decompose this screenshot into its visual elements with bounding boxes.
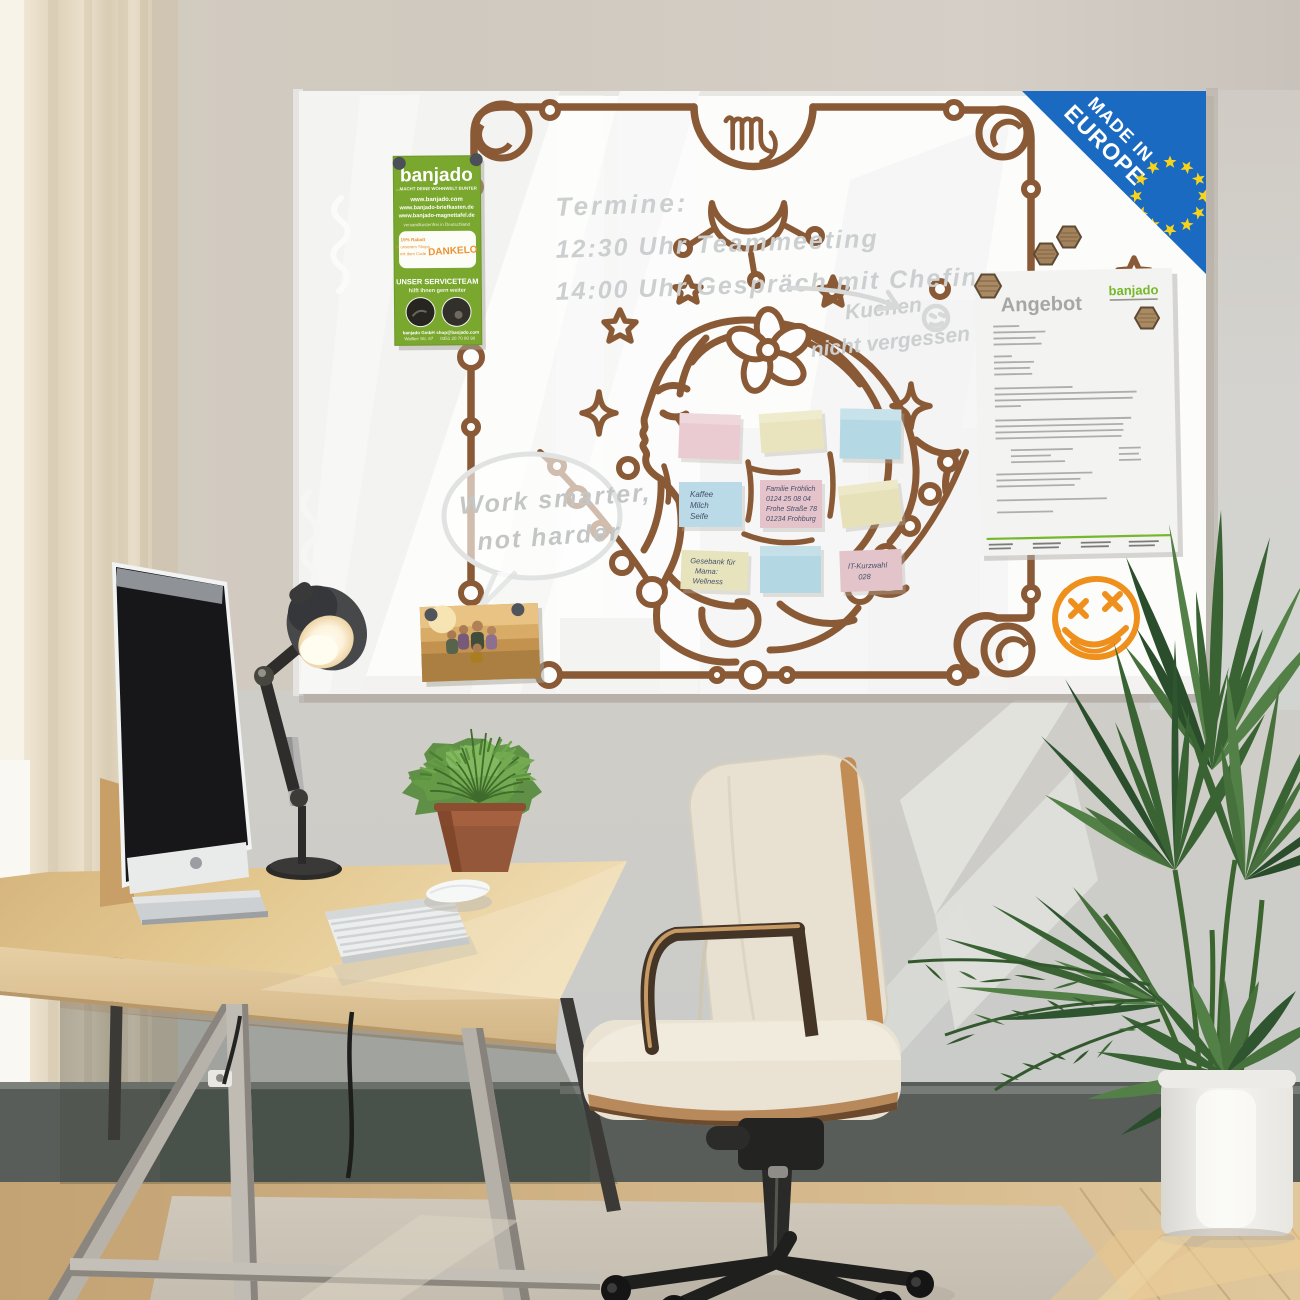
svg-text:banjado: banjado bbox=[1108, 282, 1158, 298]
svg-text:Angebot: Angebot bbox=[1001, 293, 1083, 317]
svg-text:www.banjado-briefkasten.de: www.banjado-briefkasten.de bbox=[398, 205, 473, 212]
svg-text:0351 20 70 80 90: 0351 20 70 80 90 bbox=[440, 336, 476, 341]
svg-text:mit dem Code: mit dem Code bbox=[400, 251, 427, 256]
svg-text:Frohe Straße 78: Frohe Straße 78 bbox=[766, 506, 817, 513]
svg-text:Mama:: Mama: bbox=[695, 566, 718, 576]
svg-text:15% Rabatt: 15% Rabatt bbox=[401, 237, 426, 242]
svg-text:versandkostenfrei in Deutschla: versandkostenfrei in Deutschland bbox=[403, 222, 470, 228]
svg-text:hilft Ihnen gern weiter: hilft Ihnen gern weiter bbox=[409, 288, 467, 295]
svg-text:Seife: Seife bbox=[690, 512, 709, 521]
svg-text:IT-Kurzwahl: IT-Kurzwahl bbox=[848, 560, 888, 570]
svg-text:Milch: Milch bbox=[690, 501, 709, 510]
svg-text:...MACHT DEINE WOHNWELT BUNTER: ...MACHT DEINE WOHNWELT BUNTER bbox=[396, 186, 478, 192]
svg-text:www.banjado.com: www.banjado.com bbox=[409, 197, 463, 203]
svg-text:01234 Frohburg: 01234 Frohburg bbox=[766, 516, 816, 523]
svg-text:banjado GmbH: banjado GmbH bbox=[403, 330, 435, 335]
svg-text:Gesebank für: Gesebank für bbox=[690, 556, 736, 567]
svg-text:Wellness: Wellness bbox=[692, 576, 723, 586]
svg-text:Kaffee: Kaffee bbox=[690, 490, 714, 499]
svg-text:www.banjado-magnettafel.de: www.banjado-magnettafel.de bbox=[398, 213, 475, 220]
svg-text:Walllee Str. 87: Walllee Str. 87 bbox=[404, 336, 433, 341]
svg-text:in unserem Shops: in unserem Shops bbox=[396, 244, 430, 249]
svg-text:banjado: banjado bbox=[400, 165, 473, 187]
svg-text:0124 25 08 04: 0124 25 08 04 bbox=[766, 496, 811, 503]
svg-text:Familie Fröhlich: Familie Fröhlich bbox=[766, 486, 816, 493]
svg-text:Termine:: Termine: bbox=[555, 187, 689, 222]
svg-text:shop@banjado.com: shop@banjado.com bbox=[436, 330, 479, 335]
svg-text:028: 028 bbox=[858, 572, 872, 581]
svg-text:UNSER SERVICETEAM: UNSER SERVICETEAM bbox=[396, 277, 478, 287]
